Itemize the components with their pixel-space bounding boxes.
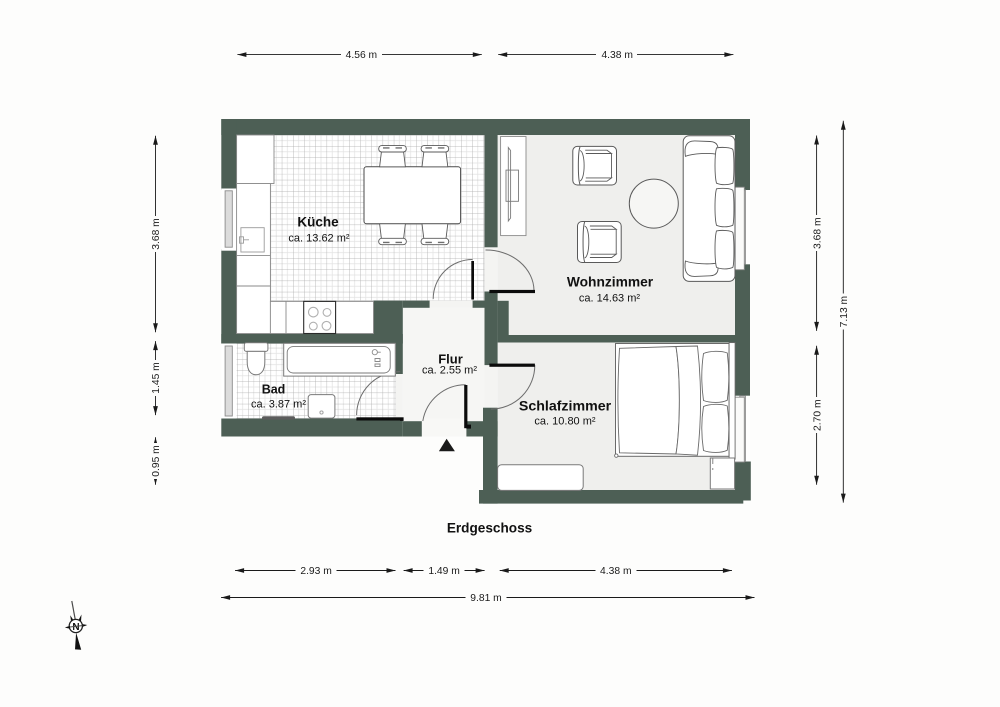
svg-text:Wohnzimmer: Wohnzimmer — [567, 275, 654, 290]
svg-text:1.49 m: 1.49 m — [428, 566, 459, 577]
svg-text:2.93 m: 2.93 m — [300, 566, 331, 577]
svg-text:2.70 m: 2.70 m — [812, 399, 823, 430]
svg-text:1.45 m: 1.45 m — [151, 362, 162, 393]
svg-text:3.68 m: 3.68 m — [812, 217, 823, 248]
svg-text:Erdgeschoss: Erdgeschoss — [447, 521, 532, 536]
svg-text:Küche: Küche — [297, 215, 339, 230]
svg-text:3.68 m: 3.68 m — [151, 218, 162, 249]
svg-text:4.38 m: 4.38 m — [600, 566, 631, 577]
svg-text:9.81 m: 9.81 m — [470, 593, 501, 604]
svg-text:ca. 10.80 m²: ca. 10.80 m² — [534, 416, 595, 428]
svg-text:ca. 2.55 m²: ca. 2.55 m² — [422, 365, 477, 377]
svg-text:N: N — [72, 622, 79, 633]
svg-text:ca. 13.62 m²: ca. 13.62 m² — [288, 233, 349, 245]
svg-text:4.38 m: 4.38 m — [601, 50, 632, 61]
svg-text:4.56 m: 4.56 m — [346, 50, 377, 61]
svg-text:Schlafzimmer: Schlafzimmer — [519, 399, 612, 415]
svg-text:ca. 3.87 m²: ca. 3.87 m² — [251, 399, 306, 411]
svg-text:0.95 m: 0.95 m — [151, 445, 162, 476]
svg-text:ca. 14.63 m²: ca. 14.63 m² — [579, 293, 640, 305]
svg-text:Bad: Bad — [262, 383, 286, 397]
svg-text:7.13 m: 7.13 m — [839, 296, 850, 327]
